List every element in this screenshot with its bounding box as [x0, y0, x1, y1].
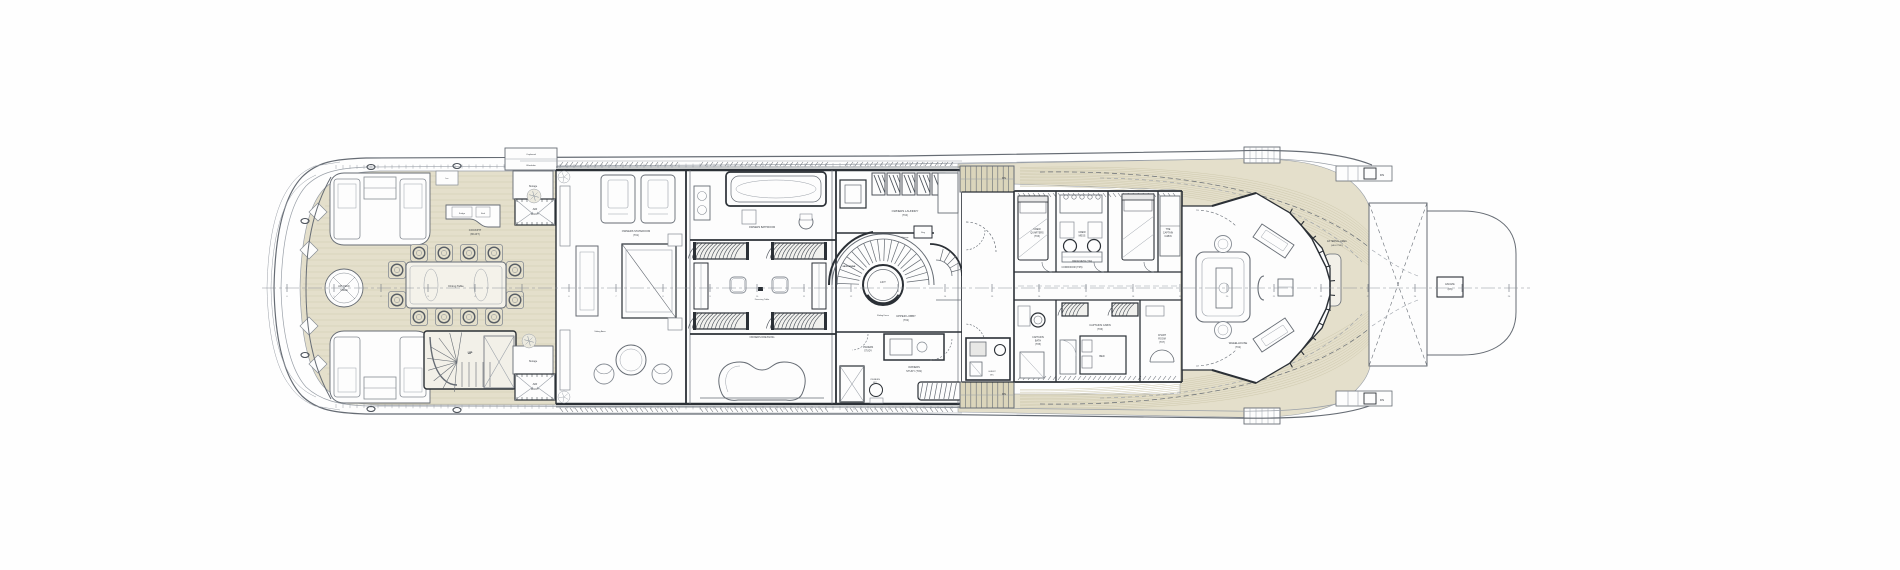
svg-text:(T04): (T04) — [902, 214, 908, 217]
svg-text:THE: THE — [1166, 228, 1171, 231]
svg-text:CAPTAINS: CAPTAINS — [1032, 336, 1044, 339]
svg-text:CAPTAINS CABIN: CAPTAINS CABIN — [1089, 323, 1111, 327]
svg-text:Storage: Storage — [529, 360, 538, 363]
svg-text:LIFT: LIFT — [880, 280, 886, 284]
svg-text:ROOM: ROOM — [1158, 338, 1165, 341]
svg-text:OWNERS: OWNERS — [870, 379, 880, 381]
svg-text:TABLE: TABLE — [340, 289, 348, 292]
svg-text:CORRIDOR (T05): CORRIDOR (T05) — [1061, 265, 1082, 269]
svg-text:AFT DECK: AFT DECK — [338, 285, 350, 288]
svg-text:OWNERS: OWNERS — [908, 365, 920, 369]
svg-text:CAPTAIN: CAPTAIN — [1163, 232, 1173, 235]
svg-text:BED: BED — [1099, 354, 1104, 358]
svg-text:Dining Table: Dining Table — [448, 284, 464, 288]
svg-text:Cupboard: Cupboard — [526, 153, 536, 156]
svg-text:DN: DN — [1002, 392, 1006, 396]
svg-text:Sitting Area: Sitting Area — [594, 330, 606, 333]
svg-text:DUCT: DUCT — [531, 387, 539, 391]
svg-text:OWNERS STATEROOM: OWNERS STATEROOM — [622, 229, 650, 233]
svg-text:CHART: CHART — [1158, 334, 1167, 337]
svg-text:UP: UP — [468, 351, 473, 355]
svg-text:ESCAPE: ESCAPE — [1445, 283, 1455, 286]
svg-text:GUEST: GUEST — [988, 371, 996, 373]
svg-text:Dressing Table: Dressing Table — [755, 298, 770, 301]
svg-text:WC: WC — [873, 382, 877, 384]
svg-text:(T07): (T07) — [1159, 341, 1165, 344]
svg-text:MEZZANINE: MEZZANINE — [843, 265, 856, 268]
svg-text:Storage: Storage — [529, 185, 538, 188]
svg-text:STUDY: STUDY — [864, 350, 872, 352]
svg-text:DUCT: DUCT — [531, 212, 539, 216]
svg-text:Fridge: Fridge — [459, 212, 466, 215]
svg-text:DN: DN — [1380, 398, 1384, 402]
svg-text:OWNERS BATHROOM: OWNERS BATHROOM — [749, 226, 775, 229]
svg-text:WC: WC — [990, 374, 994, 376]
svg-text:OWNERS DRESSING: OWNERS DRESSING — [749, 336, 774, 339]
svg-text:CABIN: CABIN — [1164, 235, 1172, 238]
svg-text:QUARTERS: QUARTERS — [1030, 232, 1044, 235]
svg-text:(T02): (T02) — [1235, 346, 1241, 349]
svg-text:DN: DN — [1380, 173, 1384, 177]
svg-text:STUDY (T03): STUDY (T03) — [906, 369, 922, 373]
svg-text:(T03): (T03) — [1034, 235, 1040, 238]
svg-text:BATH: BATH — [1035, 340, 1041, 343]
svg-text:(DN): (DN) — [1448, 289, 1453, 291]
svg-text:CREW: CREW — [1078, 231, 1086, 234]
svg-text:(T02): (T02) — [903, 319, 909, 322]
svg-text:MESS: MESS — [1079, 235, 1086, 238]
svg-text:Sliding Doors: Sliding Doors — [877, 315, 889, 317]
svg-text:OWNERS: OWNERS — [863, 347, 874, 349]
svg-text:UPPER LOBBY: UPPER LOBBY — [896, 314, 916, 318]
svg-text:(HELI TWD): (HELI TWD) — [1331, 245, 1343, 247]
svg-text:Storage: Storage — [901, 236, 909, 239]
svg-text:(86 AFT): (86 AFT) — [470, 233, 480, 236]
svg-text:CREW MESS (T04): CREW MESS (T04) — [1072, 261, 1093, 263]
svg-text:Wardrobe: Wardrobe — [526, 164, 536, 167]
svg-text:(T01): (T01) — [633, 234, 639, 237]
svg-text:WHEELHOUSE: WHEELHOUSE — [1229, 341, 1248, 345]
svg-text:(T05): (T05) — [1035, 343, 1041, 346]
svg-text:OWNERS LAUNDRY: OWNERS LAUNDRY — [892, 209, 919, 213]
svg-text:(T06): (T06) — [1097, 328, 1103, 331]
svg-text:COCKPIT: COCKPIT — [469, 228, 482, 232]
svg-text:DN: DN — [1002, 176, 1006, 180]
svg-text:EXTERNAL AREA: EXTERNAL AREA — [1327, 240, 1347, 243]
svg-text:AIR: AIR — [533, 382, 538, 386]
svg-text:CREW: CREW — [1033, 228, 1041, 231]
svg-text:AIR: AIR — [533, 207, 538, 211]
